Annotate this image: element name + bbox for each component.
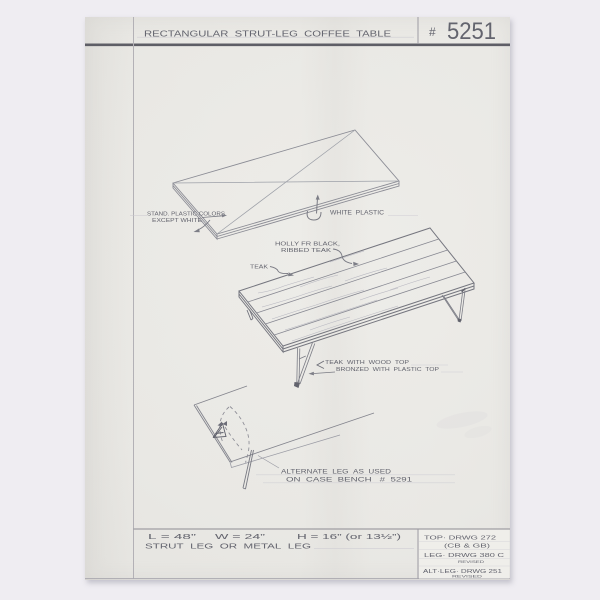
svg-text:H = 16” (or 13½”): H = 16” (or 13½”): [297, 532, 402, 541]
svg-text:5251: 5251: [447, 18, 496, 45]
svg-text:RIBBED TEAK: RIBBED TEAK: [281, 248, 331, 254]
svg-text:STRUT LEG OR METAL LEG: STRUT LEG OR METAL LEG: [145, 542, 311, 551]
svg-text:TEAK WITH WOOD TOP: TEAK WITH WOOD TOP: [325, 360, 409, 366]
svg-text:REVISED: REVISED: [452, 573, 482, 578]
svg-text:EXCEPT WHITE: EXCEPT WHITE: [152, 218, 202, 224]
svg-text:(CB & GB): (CB & GB): [444, 544, 491, 550]
svg-text:W = 24”: W = 24”: [215, 532, 266, 541]
svg-text:REVISED: REVISED: [458, 559, 484, 564]
svg-text:HOLLY FR BLACK,: HOLLY FR BLACK,: [275, 242, 341, 248]
svg-text:#: #: [429, 25, 436, 39]
svg-text:WHITE PLASTIC: WHITE PLASTIC: [330, 211, 385, 217]
svg-text:L = 48”: L = 48”: [148, 532, 197, 541]
svg-text:ON CASE BENCH # 5291: ON CASE BENCH # 5291: [286, 478, 413, 484]
svg-text:RECTANGULAR STRUT-LEG COFFEE: RECTANGULAR STRUT-LEG COFFEE TABLE: [144, 30, 391, 39]
svg-text:TEAK: TEAK: [250, 265, 268, 271]
svg-text:ALTERNATE LEG AS USED: ALTERNATE LEG AS USED: [281, 470, 392, 476]
svg-text:TOP· DRWG 272: TOP· DRWG 272: [424, 536, 496, 542]
svg-text:BRONZED WITH PLASTIC TOP: BRONZED WITH PLASTIC TOP: [336, 367, 439, 373]
